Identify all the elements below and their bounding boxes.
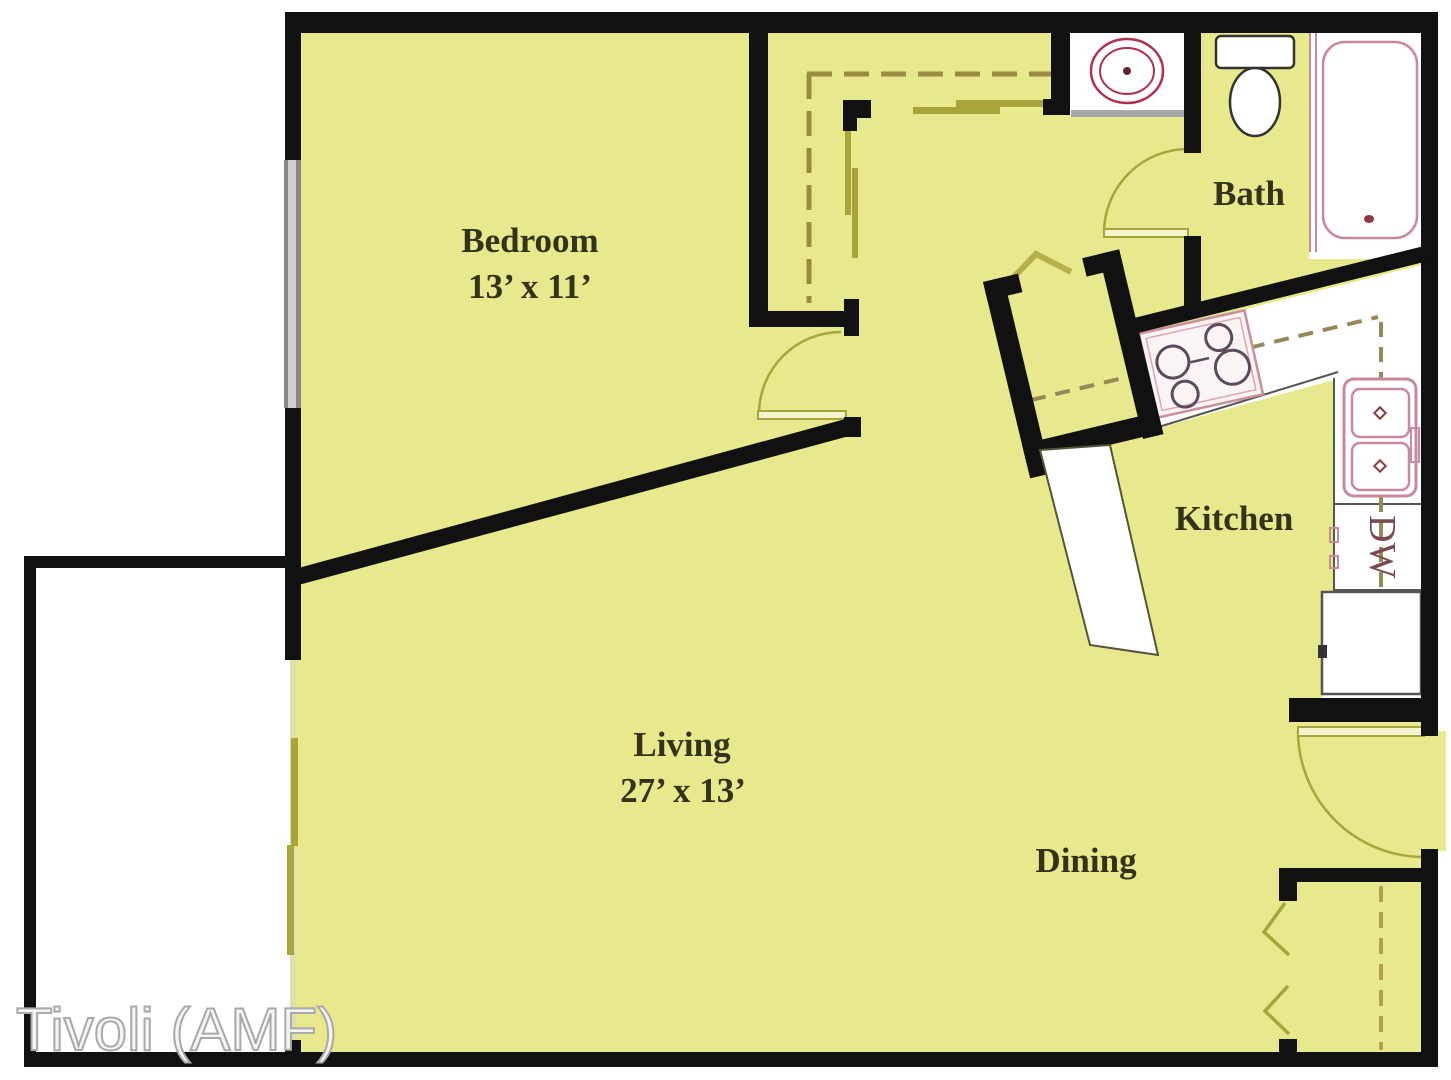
svg-text:27’ x 13’: 27’ x 13’ bbox=[620, 771, 746, 810]
svg-text:DW: DW bbox=[1361, 515, 1403, 578]
svg-text:Tivoli (AMF): Tivoli (AMF) bbox=[16, 996, 337, 1063]
svg-text:Bath: Bath bbox=[1213, 174, 1285, 213]
svg-text:Bedroom: Bedroom bbox=[461, 221, 598, 260]
svg-text:Dining: Dining bbox=[1035, 841, 1137, 880]
svg-text:Living: Living bbox=[633, 725, 731, 764]
svg-text:Kitchen: Kitchen bbox=[1175, 499, 1294, 538]
svg-text:13’ x 11’: 13’ x 11’ bbox=[468, 267, 592, 306]
